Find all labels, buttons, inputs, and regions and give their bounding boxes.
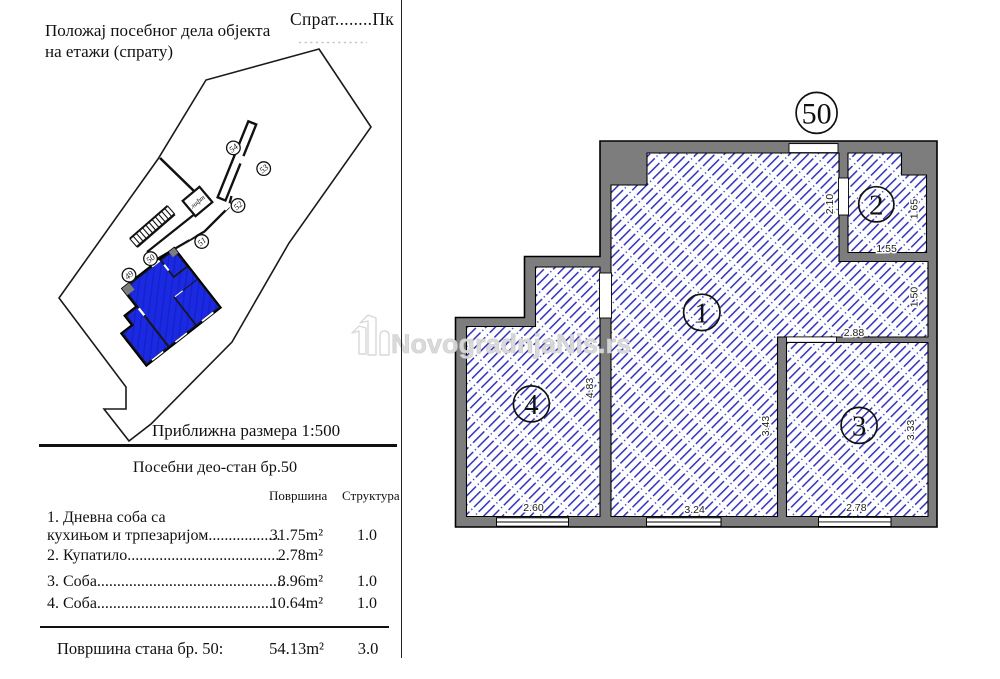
svg-text:3.24: 3.24 (684, 504, 705, 516)
svg-text:2: 2 (869, 189, 884, 221)
svg-text:3.33: 3.33 (905, 420, 917, 441)
svg-text:2.60: 2.60 (523, 502, 544, 514)
svg-text:1.65: 1.65 (909, 199, 921, 220)
svg-text:2.88: 2.88 (844, 327, 865, 339)
svg-text:4: 4 (524, 389, 539, 421)
svg-text:4.83: 4.83 (584, 378, 596, 399)
svg-text:3: 3 (852, 410, 867, 442)
svg-text:2.78: 2.78 (846, 502, 867, 514)
svg-text:1: 1 (695, 297, 710, 329)
svg-text:50: 50 (802, 98, 832, 131)
svg-text:1.50: 1.50 (909, 287, 921, 308)
svg-text:3.43: 3.43 (760, 416, 772, 437)
svg-text:2.10: 2.10 (824, 194, 836, 215)
svg-text:NovogradnjaNis.rs: NovogradnjaNis.rs (391, 329, 631, 359)
svg-text:1.55: 1.55 (876, 243, 897, 255)
